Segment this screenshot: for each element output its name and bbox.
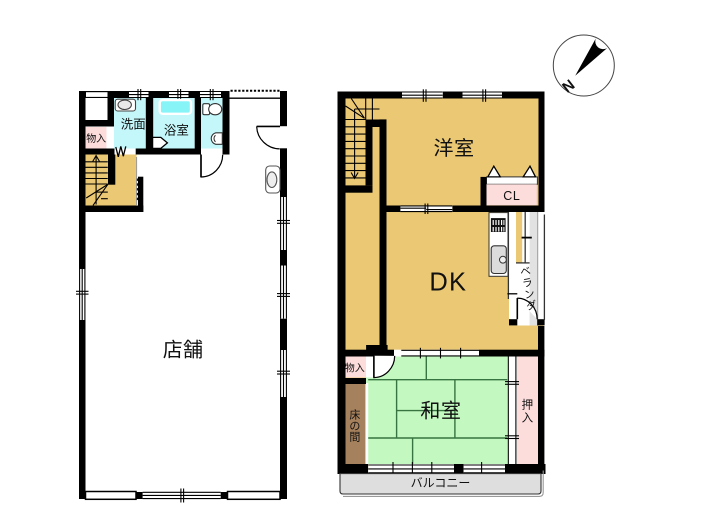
svg-text:CL: CL (503, 189, 520, 203)
svg-text:洋室: 洋室 (433, 137, 474, 160)
svg-text:浴室: 浴室 (164, 123, 189, 138)
svg-text:バルコニー: バルコニー (411, 476, 471, 490)
svg-text:洗面: 洗面 (121, 118, 146, 132)
svg-text:物入: 物入 (345, 362, 365, 375)
svg-text:入: 入 (522, 412, 534, 425)
svg-text:店舗: 店舗 (163, 338, 204, 361)
svg-text:押: 押 (522, 398, 534, 412)
svg-text:間: 間 (349, 431, 360, 444)
svg-text:床: 床 (349, 407, 360, 421)
svg-text:和室: 和室 (420, 400, 461, 423)
svg-text:物入: 物入 (86, 132, 106, 145)
svg-text:DK: DK (429, 268, 467, 296)
